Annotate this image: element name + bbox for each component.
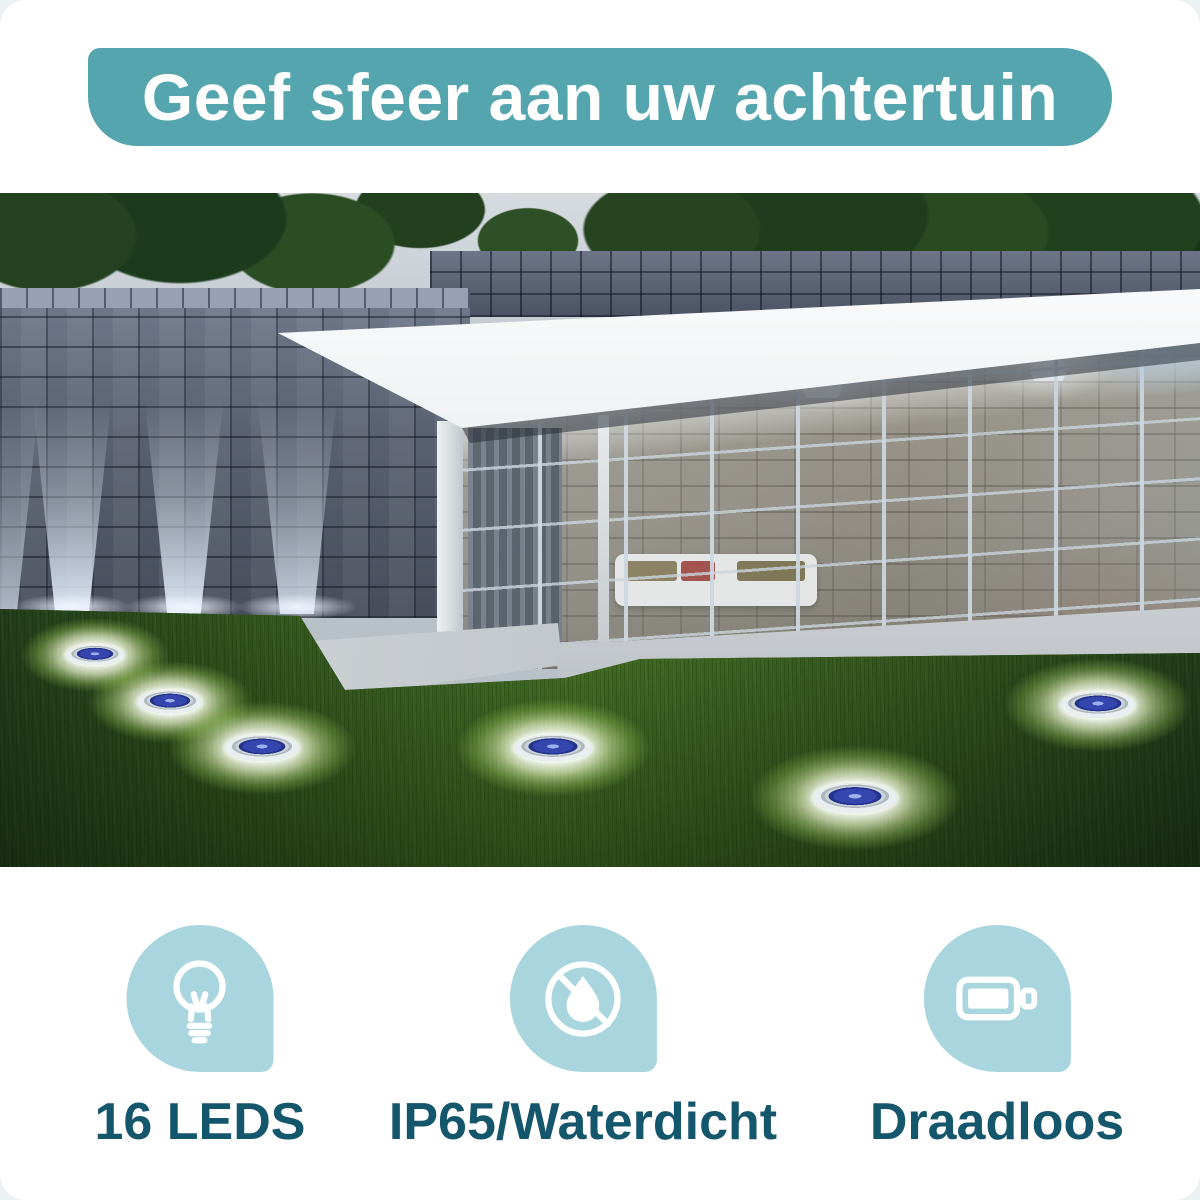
light-disc (813, 783, 897, 813)
light-disc (514, 735, 592, 762)
no-water-icon (535, 951, 631, 1047)
product-infographic-card: Geef sfeer aan uw achtertuin (0, 0, 1200, 1200)
feature-label: Draadloos (870, 1092, 1124, 1152)
battery-icon-bubble (923, 925, 1070, 1072)
wall-uplight (255, 399, 339, 614)
feature-label: 16 LEDS (95, 1092, 306, 1152)
headline-text: Geef sfeer aan uw achtertuin (142, 59, 1058, 135)
wall-uplight (142, 399, 226, 614)
feature-label: IP65/Waterdicht (389, 1092, 777, 1152)
garden-photo (0, 193, 1200, 867)
feature-leds: 16 LEDS (95, 925, 306, 1152)
light-disc (1061, 692, 1135, 718)
no-water-icon-bubble (509, 925, 656, 1072)
light-bulb-icon (152, 951, 248, 1047)
headline-banner: Geef sfeer aan uw achtertuin (88, 48, 1112, 146)
feature-wireless: Draadloos (870, 925, 1124, 1152)
bulb-icon-bubble (126, 925, 273, 1072)
door-frame (598, 415, 609, 665)
battery-icon (949, 951, 1045, 1047)
light-disc (225, 735, 299, 761)
feature-waterproof: IP65/Waterdicht (389, 925, 777, 1152)
wall-coping-row (0, 288, 470, 308)
wall-uplight (30, 399, 114, 614)
wall-uplight (0, 399, 42, 614)
